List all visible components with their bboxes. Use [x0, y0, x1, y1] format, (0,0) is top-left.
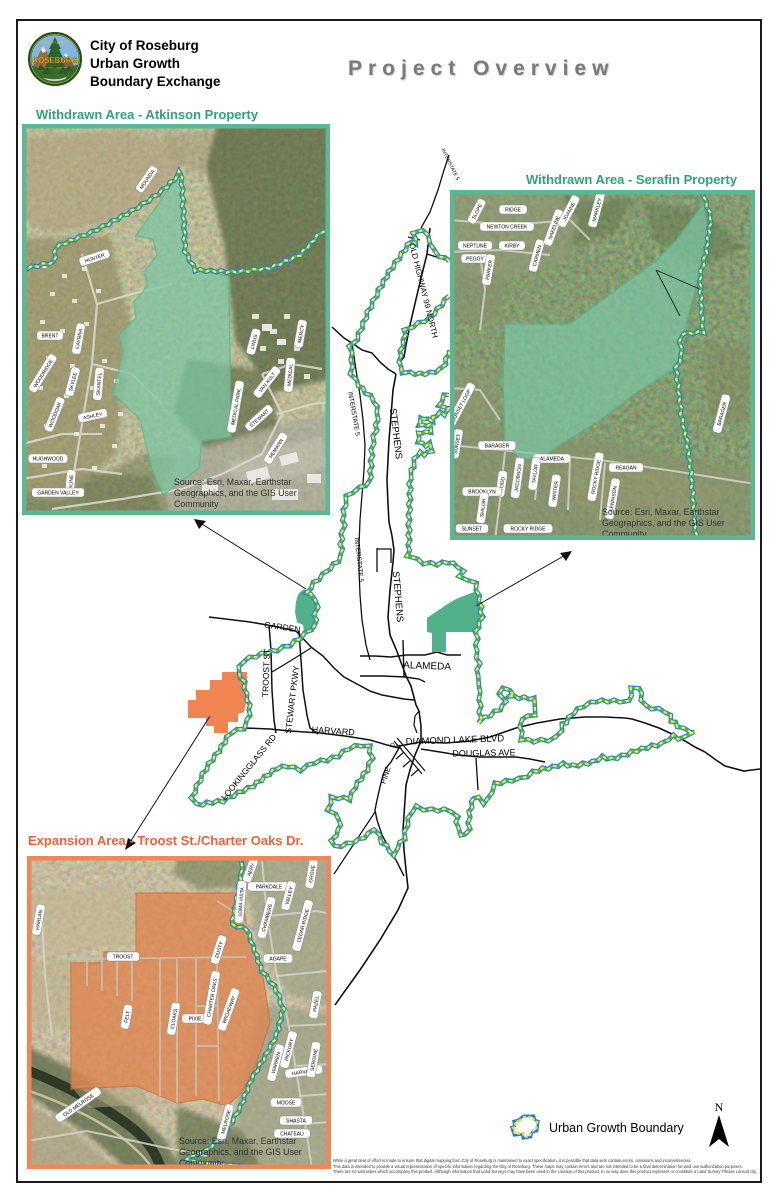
svg-text:Community: Community	[174, 499, 219, 509]
svg-text:SUNSET: SUNSET	[462, 527, 482, 533]
svg-text:PEGGY: PEGGY	[466, 257, 484, 263]
svg-text:STEPHENS: STEPHENS	[390, 571, 405, 623]
svg-text:LAND OF UMPQUA: LAND OF UMPQUA	[41, 41, 68, 45]
svg-text:PIXIE: PIXIE	[189, 1017, 202, 1023]
svg-text:KIRBY: KIRBY	[504, 244, 520, 250]
svg-text:DIAMOND LAKE BLVD: DIAMOND LAKE BLVD	[405, 733, 504, 747]
svg-text:AGAPE: AGAPE	[269, 957, 287, 963]
svg-text:ROCKY RIDGE: ROCKY RIDGE	[511, 527, 547, 533]
svg-text:ALAMEDA: ALAMEDA	[540, 457, 565, 463]
svg-text:ALAMEDA: ALAMEDA	[403, 660, 451, 673]
svg-text:N: N	[715, 1100, 724, 1114]
svg-text:HARVARD: HARVARD	[311, 725, 355, 738]
svg-text:INTERSTATE 5: INTERSTATE 5	[346, 391, 361, 437]
svg-text:Geographics, and the GIS User: Geographics, and the GIS User	[602, 518, 725, 528]
svg-text:SHASTA: SHASTA	[286, 1119, 306, 1125]
svg-text:BARAGER: BARAGER	[485, 444, 510, 450]
svg-text:Source: Esri, Maxar, Earthstar: Source: Esri, Maxar, Earthstar	[602, 507, 719, 517]
svg-text:Source: Esri, Maxar, Earthstar: Source: Esri, Maxar, Earthstar	[179, 1136, 296, 1146]
svg-text:NEPTUNE: NEPTUNE	[463, 244, 488, 250]
svg-text:TROOST: TROOST	[113, 955, 134, 961]
svg-text:TROOST ST: TROOST ST	[260, 648, 272, 697]
svg-text:Geographics, and the GIS User: Geographics, and the GIS User	[179, 1147, 302, 1157]
svg-text:ROSEBURG: ROSEBURG	[32, 56, 77, 65]
svg-text:REAGAN: REAGAN	[615, 466, 637, 472]
svg-text:PARKDALE: PARKDALE	[256, 885, 283, 891]
svg-text:BRENT: BRENT	[42, 334, 59, 340]
svg-text:DOUGLAS AVE: DOUGLAS AVE	[452, 747, 516, 758]
svg-text:GARDEN VALLEY: GARDEN VALLEY	[37, 491, 79, 497]
svg-text:STEWART PKWY: STEWART PKWY	[283, 665, 301, 734]
svg-text:INTERSTATE 5: INTERSTATE 5	[353, 537, 365, 583]
svg-text:INTERSTATE 5: INTERSTATE 5	[440, 148, 461, 182]
svg-text:Source: Esri, Maxar, Earthstar: Source: Esri, Maxar, Earthstar	[174, 477, 291, 487]
svg-text:PINE: PINE	[379, 766, 393, 785]
svg-text:NEWTON CREEK: NEWTON CREEK	[487, 225, 528, 231]
svg-text:Geographics, and the GIS User: Geographics, and the GIS User	[174, 488, 297, 498]
svg-text:LOOKINGGLASS RD: LOOKINGGLASS RD	[219, 732, 278, 802]
svg-text:RIDGE: RIDGE	[505, 208, 522, 214]
svg-text:MOOSE: MOOSE	[277, 1101, 296, 1107]
svg-text:HUGHWOOD: HUGHWOOD	[33, 457, 64, 463]
svg-text:OAK: OAK	[389, 743, 403, 752]
